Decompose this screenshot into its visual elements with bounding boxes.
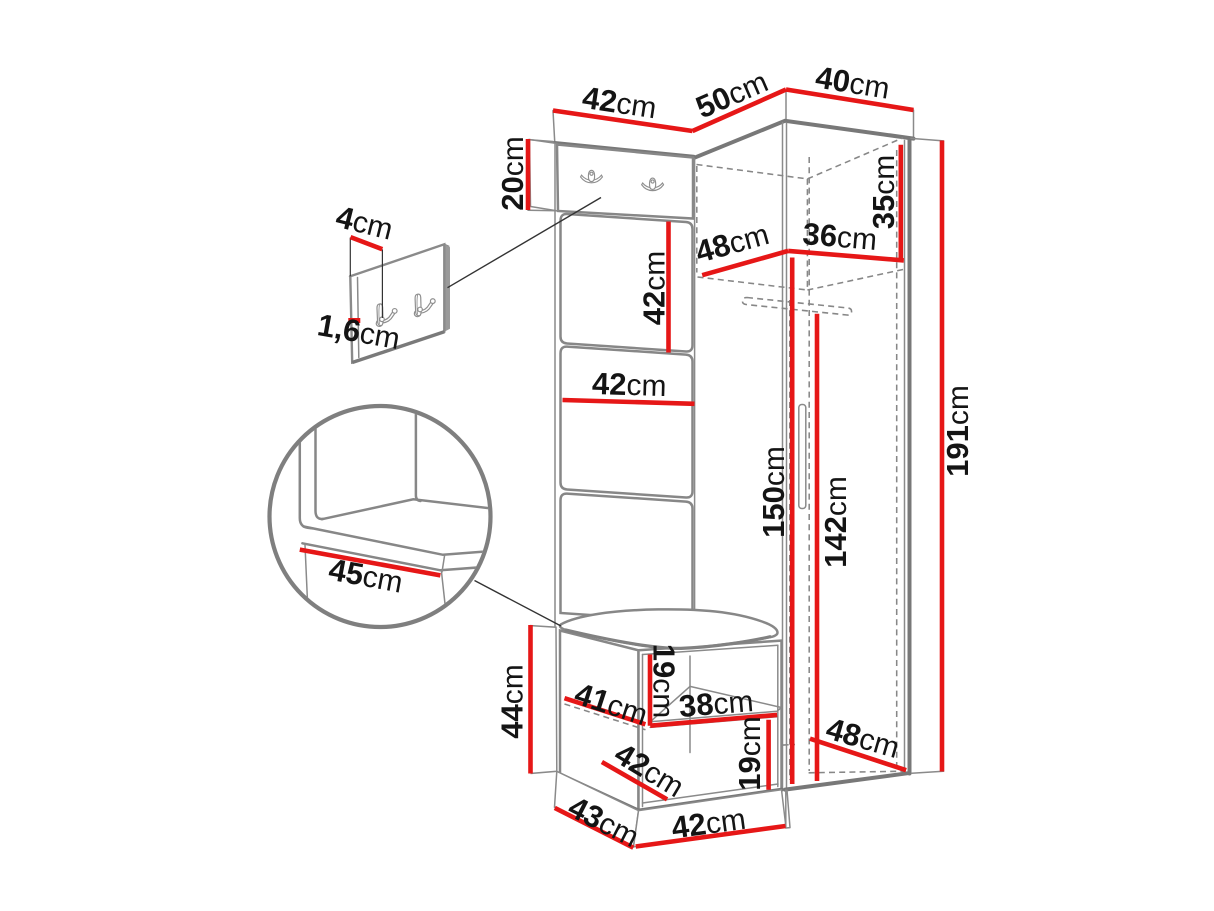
svg-text:19cm: 19cm [647, 644, 682, 718]
svg-text:48cm: 48cm [692, 216, 773, 270]
svg-text:191cm: 191cm [940, 385, 975, 477]
svg-text:19cm: 19cm [732, 716, 767, 790]
svg-text:4cm: 4cm [333, 199, 397, 247]
svg-text:44cm: 44cm [495, 664, 530, 738]
svg-text:42cm: 42cm [637, 251, 672, 325]
svg-text:150cm: 150cm [756, 446, 791, 538]
svg-text:42cm: 42cm [592, 366, 667, 403]
svg-text:20cm: 20cm [495, 136, 530, 210]
svg-text:35cm: 35cm [866, 155, 901, 229]
svg-text:142cm: 142cm [818, 476, 853, 568]
svg-text:40cm: 40cm [813, 59, 892, 105]
